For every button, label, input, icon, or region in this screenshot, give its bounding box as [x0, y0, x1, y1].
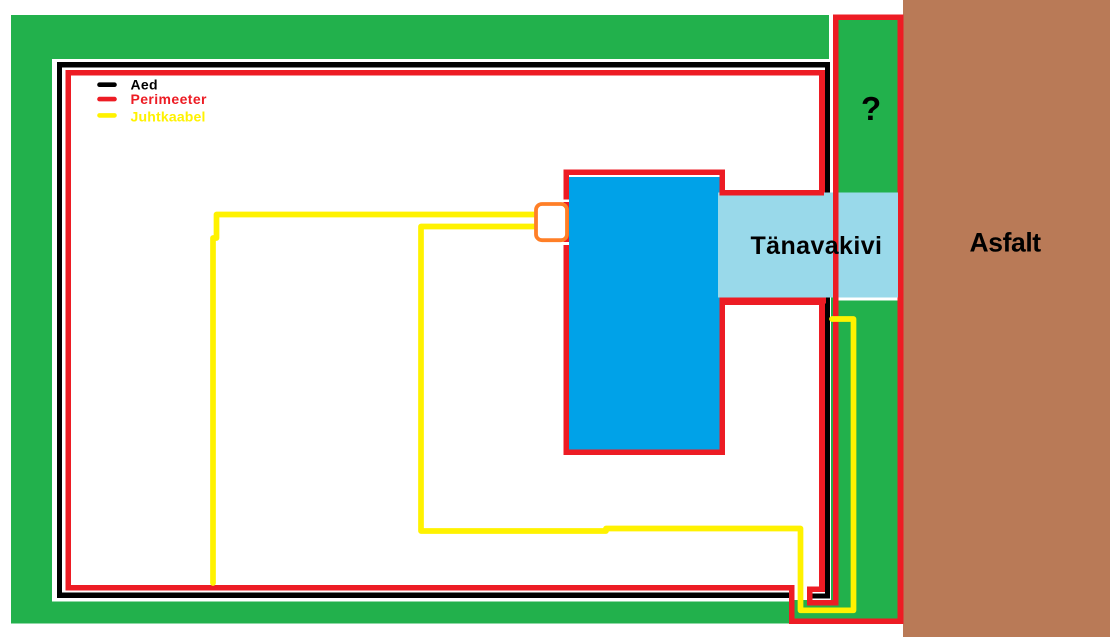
svg-text:Aed: Aed	[131, 76, 158, 92]
svg-text:Asfalt: Asfalt	[970, 227, 1042, 257]
svg-text:Juhtkaabel: Juhtkaabel	[131, 109, 206, 125]
svg-text:Perimeeter: Perimeeter	[131, 91, 208, 107]
svg-text:?: ?	[861, 90, 881, 127]
svg-text:Tänavakivi: Tänavakivi	[751, 232, 883, 260]
